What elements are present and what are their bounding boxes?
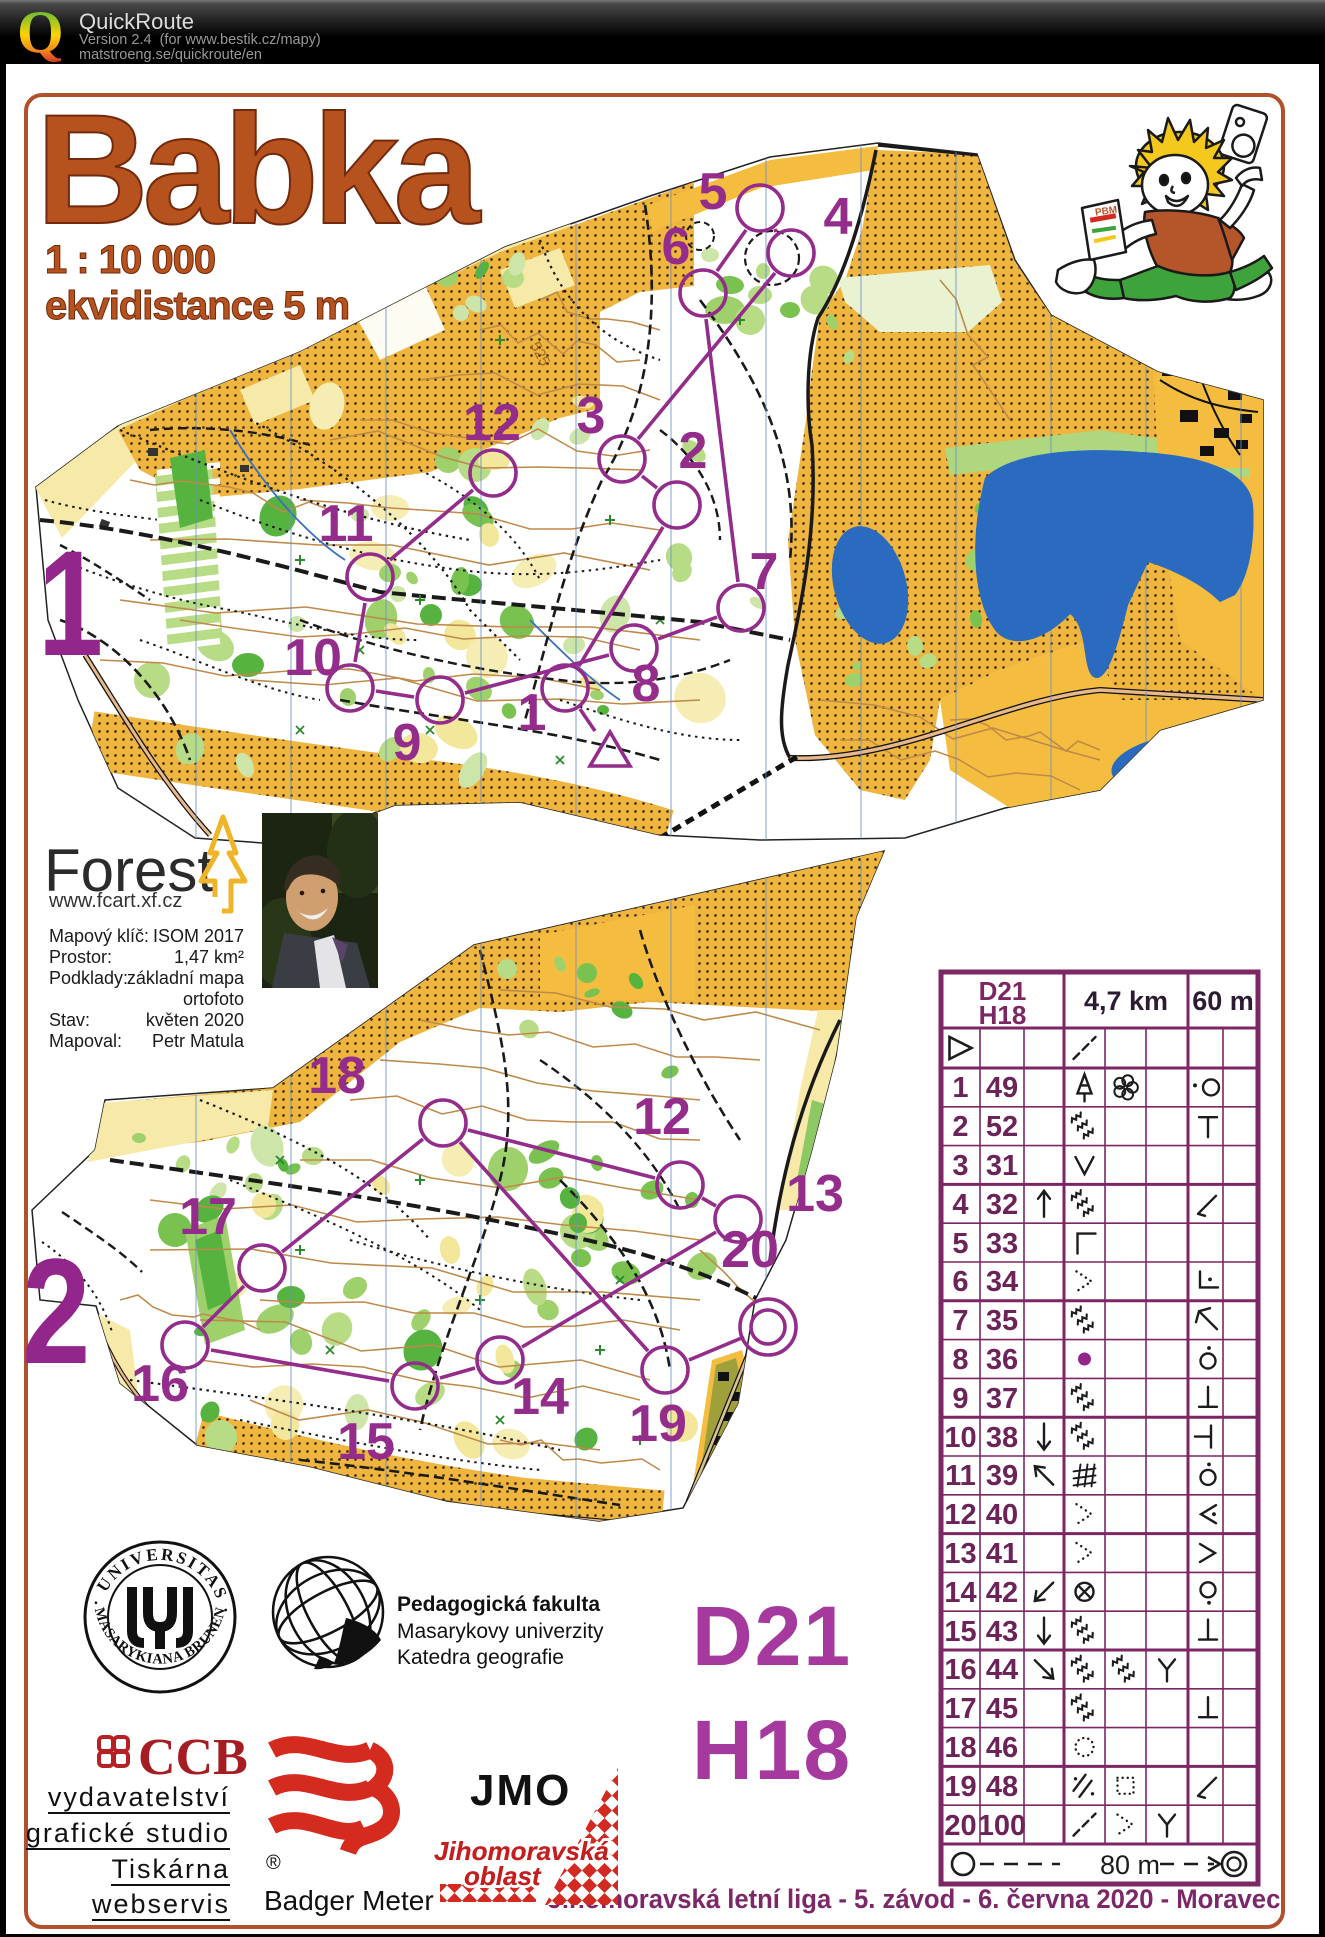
svg-text:60 m: 60 m xyxy=(1192,986,1254,1016)
svg-text:8: 8 xyxy=(952,1344,968,1376)
svg-text:12: 12 xyxy=(944,1499,976,1531)
svg-text:13: 13 xyxy=(944,1538,976,1570)
svg-text:42: 42 xyxy=(986,1577,1018,1609)
svg-text:9: 9 xyxy=(952,1383,968,1415)
svg-text:33: 33 xyxy=(986,1228,1018,1260)
svg-text:4,7 km: 4,7 km xyxy=(1084,986,1168,1016)
svg-text:52: 52 xyxy=(986,1111,1018,1143)
svg-text:43: 43 xyxy=(986,1616,1018,1648)
svg-text:37: 37 xyxy=(986,1383,1018,1415)
svg-text:15: 15 xyxy=(944,1616,976,1648)
svg-text:20: 20 xyxy=(944,1810,976,1842)
svg-text:34: 34 xyxy=(986,1266,1018,1298)
svg-text:49: 49 xyxy=(986,1072,1018,1104)
svg-text:2: 2 xyxy=(952,1111,968,1143)
svg-text:35: 35 xyxy=(986,1305,1018,1337)
svg-text:1: 1 xyxy=(952,1072,968,1104)
svg-text:18: 18 xyxy=(944,1732,976,1764)
svg-text:16: 16 xyxy=(944,1654,976,1686)
svg-text:17: 17 xyxy=(944,1693,976,1725)
svg-text:45: 45 xyxy=(986,1693,1018,1725)
svg-text:11: 11 xyxy=(945,1460,976,1492)
svg-text:31: 31 xyxy=(986,1150,1018,1182)
svg-text:39: 39 xyxy=(986,1460,1018,1492)
svg-text:4: 4 xyxy=(952,1189,968,1221)
svg-text:10: 10 xyxy=(944,1422,976,1454)
svg-text:100: 100 xyxy=(978,1810,1026,1842)
svg-text:36: 36 xyxy=(986,1344,1018,1376)
svg-text:40: 40 xyxy=(986,1499,1018,1531)
svg-text:3: 3 xyxy=(952,1150,968,1182)
svg-text:41: 41 xyxy=(986,1538,1018,1570)
svg-text:38: 38 xyxy=(986,1422,1018,1454)
svg-text:H18: H18 xyxy=(979,1000,1027,1030)
svg-text:44: 44 xyxy=(986,1654,1018,1686)
svg-text:19: 19 xyxy=(944,1771,976,1803)
svg-text:32: 32 xyxy=(986,1189,1018,1221)
svg-text:46: 46 xyxy=(986,1732,1018,1764)
svg-text:14: 14 xyxy=(944,1577,976,1609)
svg-text:5: 5 xyxy=(952,1228,968,1260)
svg-text:7: 7 xyxy=(952,1305,968,1337)
svg-text:80 m: 80 m xyxy=(1100,1850,1160,1880)
svg-text:6: 6 xyxy=(952,1266,968,1298)
svg-text:48: 48 xyxy=(986,1771,1018,1803)
